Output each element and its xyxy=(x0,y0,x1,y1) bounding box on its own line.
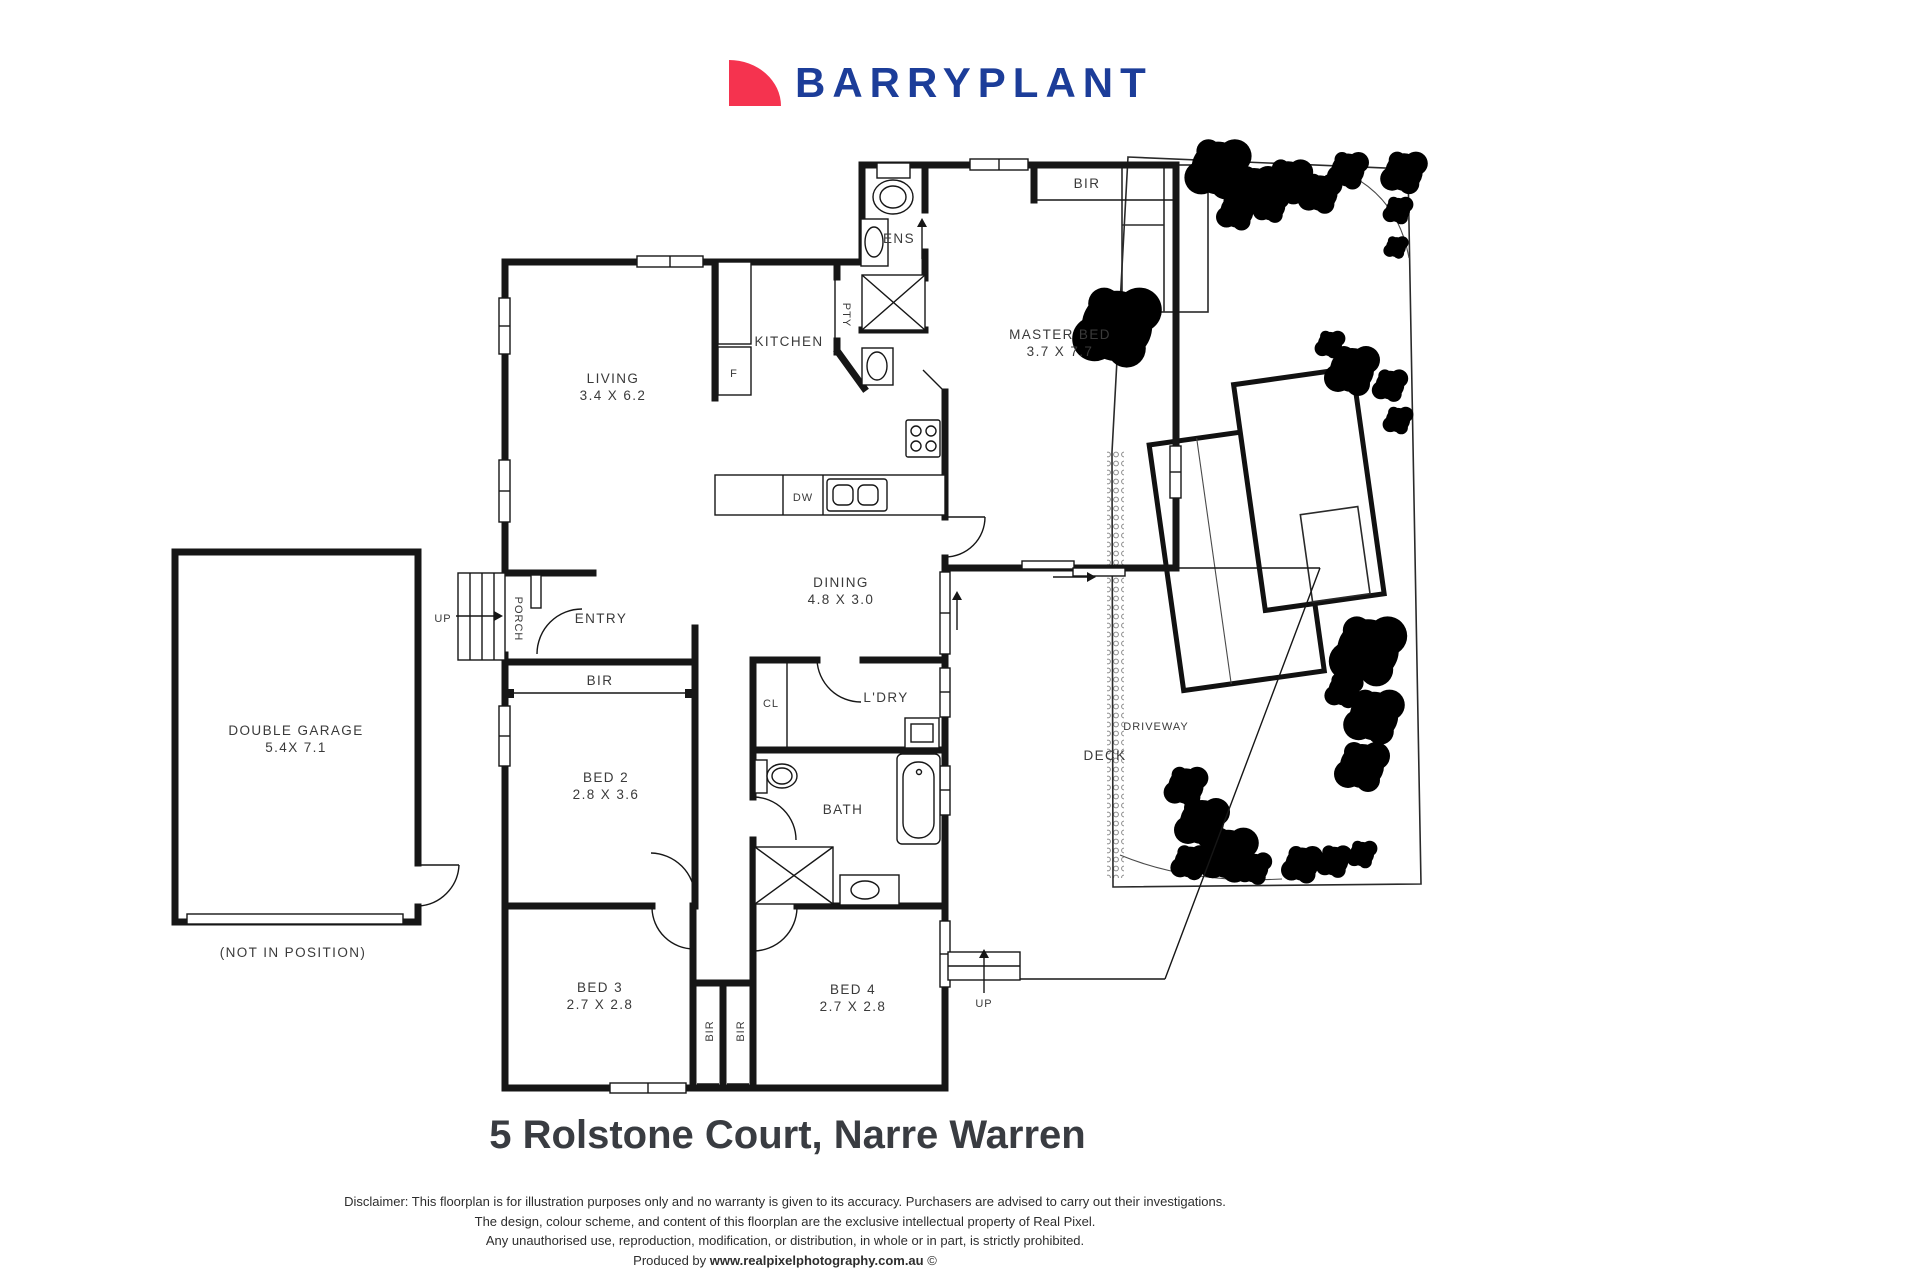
site-driveway-strip xyxy=(1107,450,1124,878)
master-bed-dims: 3.7 X 7.7 xyxy=(1027,344,1094,359)
pantry-label: PTY xyxy=(840,303,852,327)
disclaimer-block: Disclaimer: This floorplan is for illust… xyxy=(0,1192,1570,1270)
room-labels: LIVING 3.4 X 6.2 KITCHEN F PTY ENS MASTE… xyxy=(220,176,1127,1042)
kitchen-sink xyxy=(827,479,887,511)
bath-door xyxy=(753,797,796,840)
garage-note: (NOT IN POSITION) xyxy=(220,945,367,960)
fridge-label: F xyxy=(730,368,738,380)
ensuite-label: ENS xyxy=(883,231,915,246)
window xyxy=(940,572,950,654)
window xyxy=(970,159,1028,170)
bed3-label: BED 3 xyxy=(577,980,623,995)
hall-bir-label: BIR xyxy=(587,673,614,688)
window xyxy=(499,706,510,766)
bed4-bir-label: BIR xyxy=(735,1020,747,1041)
window xyxy=(1170,446,1181,498)
washing-machine xyxy=(905,718,939,748)
entry-label: ENTRY xyxy=(575,611,628,626)
garage-door-swing xyxy=(418,865,459,906)
porch-up-label: UP xyxy=(434,613,451,625)
powder-basin xyxy=(862,348,893,385)
window xyxy=(637,256,703,267)
driveway-label: DRIVEWAY xyxy=(1123,721,1188,733)
site-plan: DRIVEWAY xyxy=(1072,139,1428,887)
deck-door xyxy=(945,517,985,557)
disclaimer-line-2: The design, colour scheme, and content o… xyxy=(0,1212,1570,1232)
garage-door xyxy=(187,914,403,924)
bathtub xyxy=(897,754,940,844)
bed2-dims: 2.8 X 3.6 xyxy=(573,787,640,802)
porch-steps xyxy=(456,573,505,660)
dining-dims: 4.8 X 3.0 xyxy=(808,592,875,607)
bath-label: BATH xyxy=(823,802,864,817)
closet-label: CL xyxy=(763,698,779,710)
master-bir-label: BIR xyxy=(1074,176,1101,191)
dining-label: DINING xyxy=(813,575,869,590)
produced-by-site: www.realpixelphotography.com.au xyxy=(710,1253,924,1268)
disclaimer-line-3: Any unauthorised use, reproduction, modi… xyxy=(0,1231,1570,1251)
window xyxy=(940,668,950,717)
garage-label: DOUBLE GARAGE xyxy=(228,723,363,738)
bed3-door xyxy=(652,908,694,949)
page: BARRYPLANT xyxy=(0,0,1920,1280)
bed4-label: BED 4 xyxy=(830,982,876,997)
produced-by-suffix: © xyxy=(924,1253,937,1268)
window xyxy=(610,1083,686,1093)
window xyxy=(940,766,950,815)
bed3-dims: 2.7 X 2.8 xyxy=(567,997,634,1012)
laundry-door xyxy=(817,660,861,702)
living-label: LIVING xyxy=(587,371,640,386)
bed4-dims: 2.7 X 2.8 xyxy=(820,999,887,1014)
laundry-label: L'DRY xyxy=(863,690,908,705)
dishwasher-label: DW xyxy=(793,492,813,504)
master-bed-label: MASTER BED xyxy=(1009,327,1111,342)
bed3-bir-label: BIR xyxy=(704,1020,716,1041)
bath-vanity xyxy=(840,875,899,905)
produced-by-prefix: Produced by xyxy=(633,1253,710,1268)
bed2-label: BED 2 xyxy=(583,770,629,785)
page-title: 5 Rolstone Court, Narre Warren xyxy=(0,1113,1575,1158)
kitchen-label: KITCHEN xyxy=(754,334,823,349)
ens-shower xyxy=(862,275,925,330)
bed4-door xyxy=(753,908,797,951)
deck-label: DECK xyxy=(1083,748,1126,763)
window xyxy=(499,460,510,522)
deck-up-label: UP xyxy=(975,998,992,1010)
bath-toilet xyxy=(755,760,797,793)
living-dims: 3.4 X 6.2 xyxy=(580,388,647,403)
bath-shower xyxy=(755,847,833,904)
produced-by-line: Produced by www.realpixelphotography.com… xyxy=(0,1251,1570,1271)
garage-dims: 5.4X 7.1 xyxy=(265,740,327,755)
floorplan-svg: DRIVEWAY xyxy=(0,0,1920,1280)
disclaimer-line-1: Disclaimer: This floorplan is for illust… xyxy=(0,1192,1570,1212)
stove-cooktop xyxy=(906,420,940,457)
bed2-door xyxy=(651,853,695,897)
porch-label: PORCH xyxy=(512,597,524,642)
ens-toilet xyxy=(873,163,913,214)
window xyxy=(499,298,510,354)
